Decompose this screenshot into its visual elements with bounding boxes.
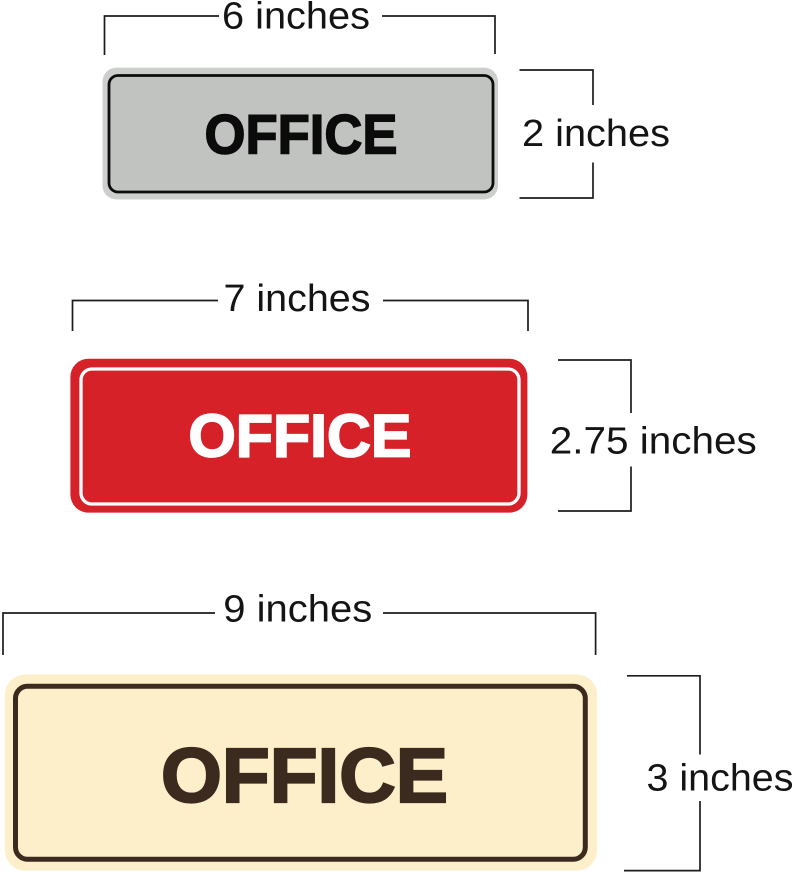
svg-text:9 inches: 9 inches xyxy=(223,589,372,631)
svg-text:2 inches: 2 inches xyxy=(522,113,670,155)
svg-text:2.75 inches: 2.75 inches xyxy=(550,421,757,463)
svg-text:6 inches: 6 inches xyxy=(222,0,370,38)
svg-text:7 inches: 7 inches xyxy=(224,278,371,320)
svg-text:3 inches: 3 inches xyxy=(647,758,794,800)
svg-text:OFFICE: OFFICE xyxy=(189,403,412,470)
svg-text:OFFICE: OFFICE xyxy=(205,103,398,166)
svg-text:OFFICE: OFFICE xyxy=(161,733,448,819)
